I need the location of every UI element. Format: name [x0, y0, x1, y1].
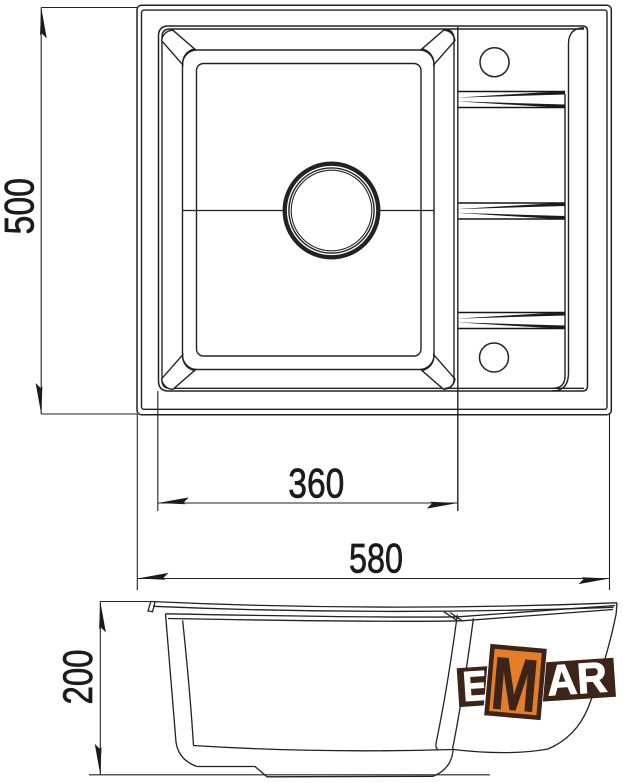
svg-text:M: M	[488, 641, 541, 728]
svg-text:500: 500	[0, 178, 43, 235]
svg-text:360: 360	[288, 460, 344, 507]
svg-text:AR: AR	[545, 654, 608, 706]
svg-text:580: 580	[349, 535, 403, 582]
svg-text:200: 200	[54, 650, 101, 705]
